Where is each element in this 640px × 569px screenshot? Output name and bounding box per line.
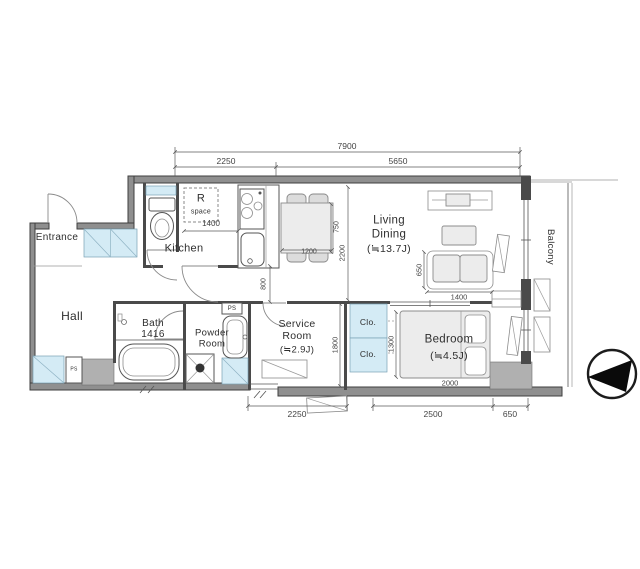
dim-sofa-depth: 650 (415, 264, 423, 277)
dim-top-right: 5650 (389, 157, 408, 166)
sofa-icon (427, 251, 493, 289)
room-label-bedroom-1: Bedroom (425, 334, 474, 346)
compass-icon (588, 350, 636, 398)
bedroom-curtain-icon (507, 316, 523, 355)
dim-service-depth: 1800 (331, 337, 339, 354)
room-label-service-3: (≒2.9J) (280, 345, 314, 355)
room-label-powder-2: Room (199, 339, 226, 349)
room-label-entrance: Entrance (36, 233, 78, 243)
dim-bottom-right: 650 (503, 410, 517, 419)
sink-icon (241, 233, 264, 266)
washing-machine-icon (186, 354, 214, 383)
closet-label-top: Clo. (360, 318, 376, 327)
dim-bottom-left: 2250 (288, 410, 307, 419)
room-label-bedroom-2: (≒4.5J) (430, 351, 468, 362)
shoe-cabinet-icon (84, 229, 137, 257)
window-shutter-icon (307, 396, 348, 413)
room-label-service-1: Service (278, 319, 315, 330)
ps-label-powder: PS (228, 306, 237, 312)
dim-bed-width: 2000 (442, 379, 459, 387)
dim-bottom-mid: 2500 (424, 410, 443, 419)
room-label-bath-size: 1416 (141, 330, 164, 340)
dim-kitchen-front: 1400 (202, 220, 220, 228)
room-label-powder-1: Powder (195, 328, 229, 338)
closet-label-bottom: Clo. (360, 350, 376, 359)
floor-plan: 7900 2250 5650 Entrance Hall Kitchen R s… (0, 0, 640, 569)
room-label-balcony: Balcony (545, 229, 555, 265)
living-curtain-icon (492, 234, 509, 272)
room-label-living-2: Dining (372, 229, 406, 241)
stove-icon (240, 189, 264, 229)
dim-sofa-width: 1400 (451, 293, 468, 301)
dim-bed-depth: 1300 (387, 336, 395, 353)
dim-table-depth: 750 (334, 221, 341, 233)
dim-top-total: 7900 (338, 142, 357, 151)
room-label-hall: Hall (61, 310, 83, 322)
coffee-table-icon (442, 226, 476, 245)
hall-closet-icon (33, 356, 64, 383)
bedroom-cabinet-icon (492, 291, 521, 307)
r-space-label-r: R (197, 194, 205, 205)
ps-label-hall: PS (70, 368, 77, 373)
room-label-living-3: (≒13.7J) (367, 244, 411, 255)
room-label-bath: Bath (142, 319, 164, 329)
r-space-label-space: space (191, 209, 211, 216)
dim-table-width: 1200 (301, 249, 317, 256)
service-desk-icon (262, 360, 307, 378)
room-label-living-1: Living (373, 215, 405, 227)
toilet-shelf-icon (146, 186, 176, 195)
floor-plan-drawing (0, 0, 640, 569)
dim-top-left: 2250 (217, 157, 236, 166)
room-label-service-2: Room (282, 331, 311, 342)
dim-corridor: 800 (261, 278, 268, 290)
room-label-kitchen: Kitchen (165, 244, 204, 255)
toilet-icon (149, 198, 175, 240)
tv-board-icon (428, 191, 492, 210)
ac-unit-icon (534, 279, 550, 352)
powder-closet-icon (222, 358, 248, 384)
dim-ld-width: 2200 (338, 245, 346, 262)
